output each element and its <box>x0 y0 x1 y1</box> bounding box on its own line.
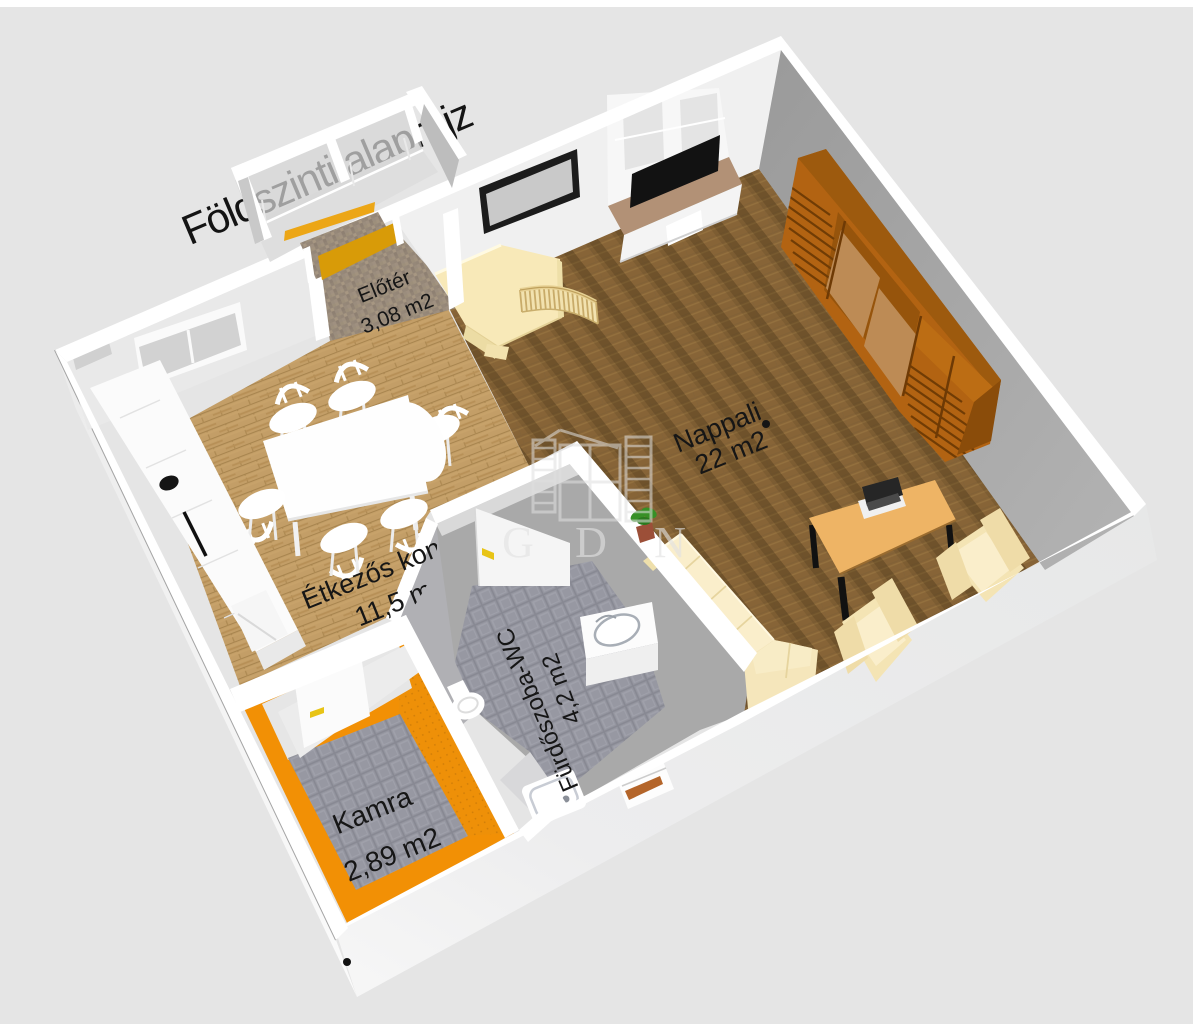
svg-text:D: D <box>575 518 607 567</box>
svg-text:G: G <box>502 518 534 567</box>
svg-text:N: N <box>654 518 686 567</box>
